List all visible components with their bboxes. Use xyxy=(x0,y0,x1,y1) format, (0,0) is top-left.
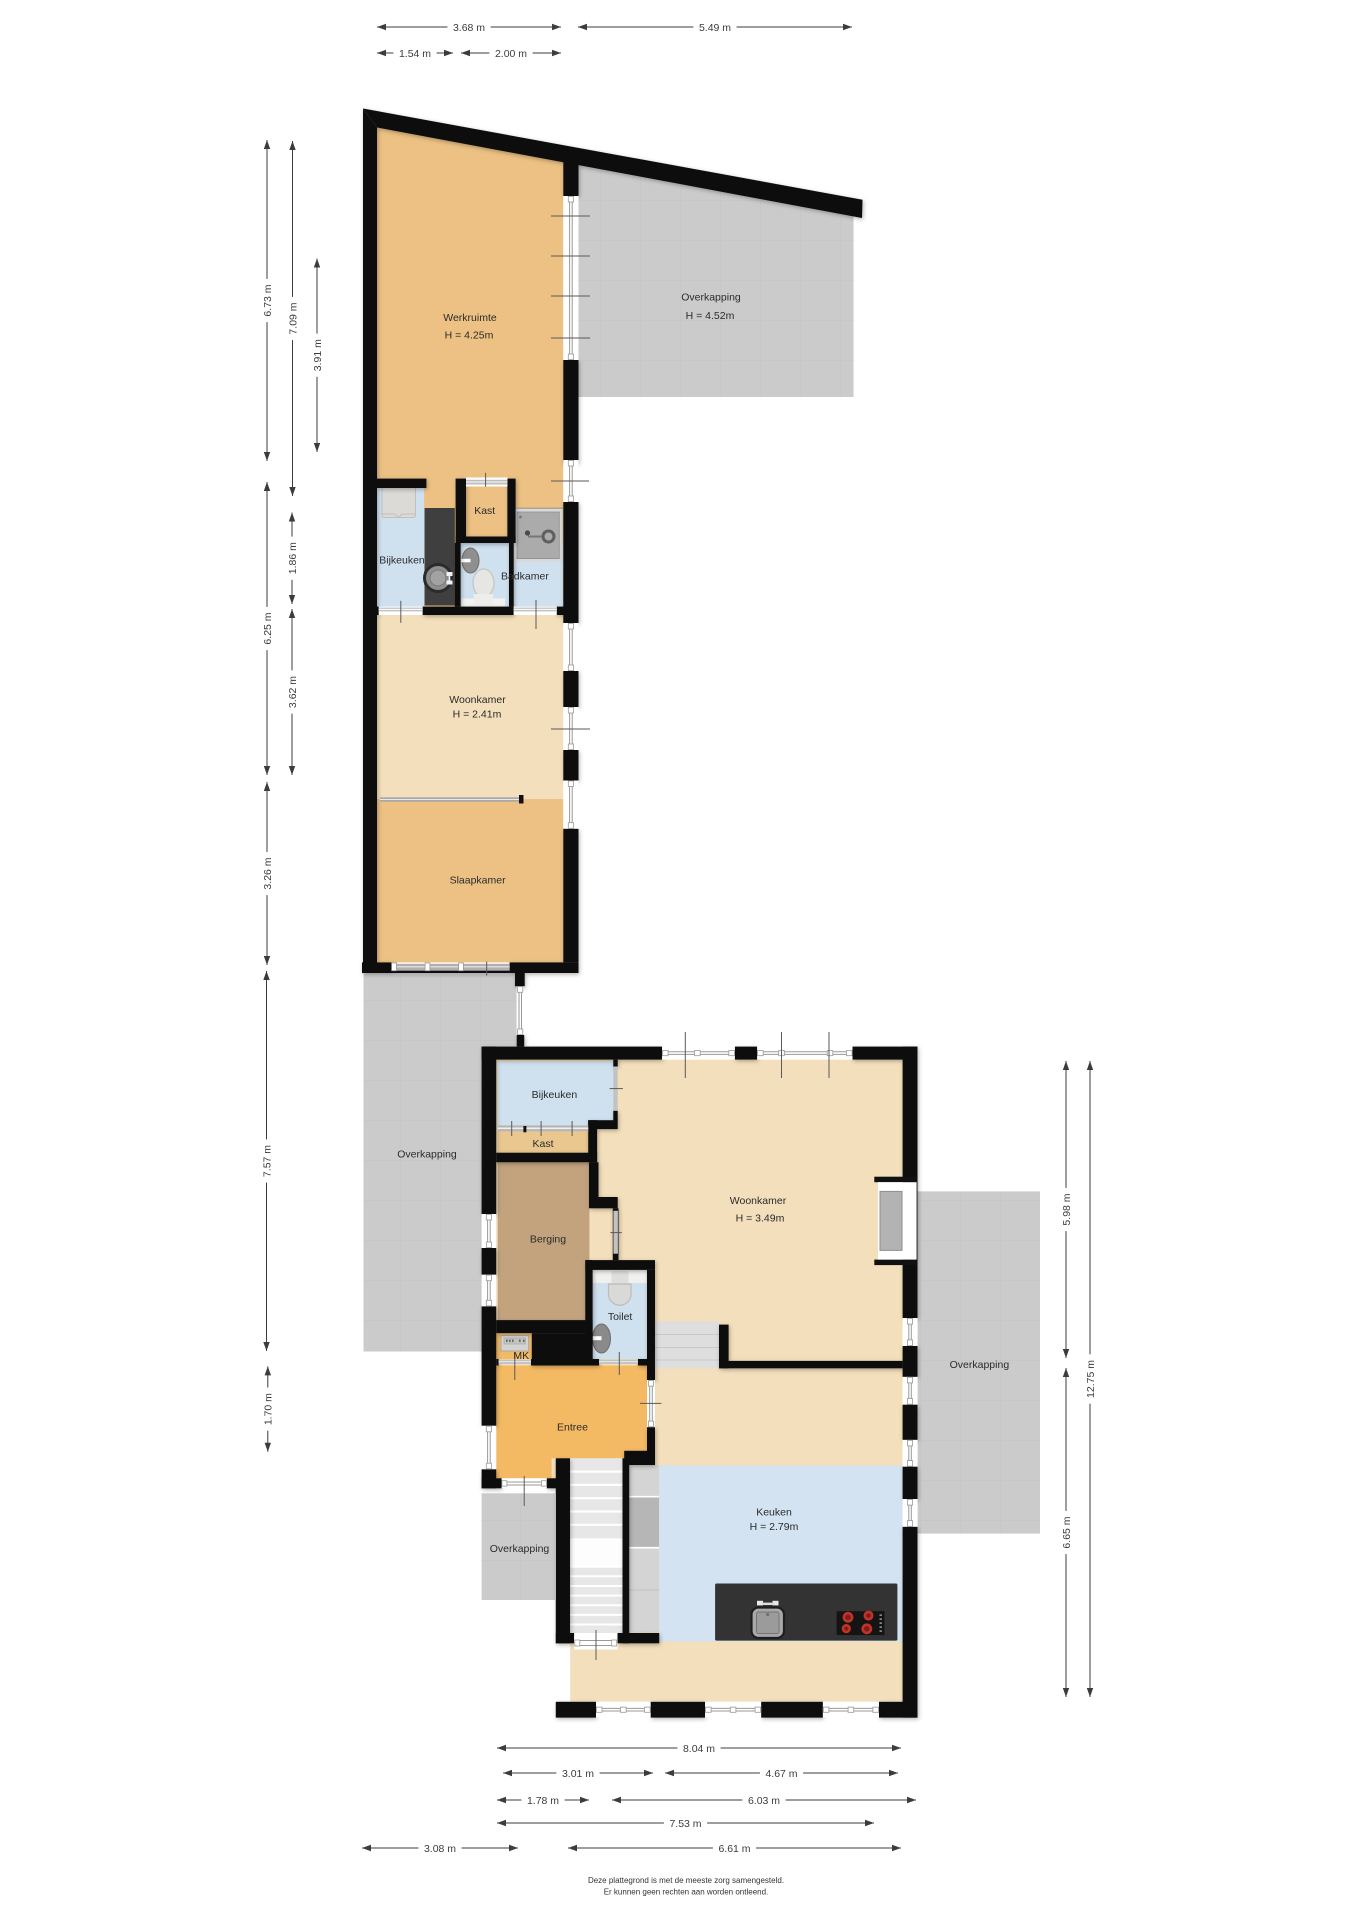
svg-text:Toilet: Toilet xyxy=(608,1311,633,1323)
svg-text:6.73 m: 6.73 m xyxy=(262,284,274,316)
svg-text:3.08 m: 3.08 m xyxy=(424,1843,456,1855)
svg-text:6.65 m: 6.65 m xyxy=(1061,1516,1073,1548)
svg-text:5.98 m: 5.98 m xyxy=(1061,1193,1073,1225)
svg-text:Entree: Entree xyxy=(557,1422,588,1434)
svg-text:1.70 m: 1.70 m xyxy=(263,1393,275,1425)
svg-text:Woonkamer: Woonkamer xyxy=(730,1195,787,1207)
svg-text:Overkapping: Overkapping xyxy=(397,1149,457,1161)
svg-text:Bijkeuken: Bijkeuken xyxy=(379,554,425,566)
svg-text:3.68 m: 3.68 m xyxy=(453,22,485,34)
svg-text:3.26 m: 3.26 m xyxy=(262,857,274,889)
svg-text:H = 2.41m: H = 2.41m xyxy=(453,709,502,721)
svg-text:H = 4.52m: H = 4.52m xyxy=(686,310,735,322)
svg-text:3.01 m: 3.01 m xyxy=(562,1768,594,1780)
svg-text:7.09 m: 7.09 m xyxy=(287,302,299,334)
svg-text:12.75 m: 12.75 m xyxy=(1085,1360,1097,1398)
svg-text:7.57 m: 7.57 m xyxy=(261,1145,273,1177)
svg-text:8.04 m: 8.04 m xyxy=(683,1743,715,1755)
svg-text:7.53 m: 7.53 m xyxy=(669,1818,701,1830)
svg-text:H = 2.79m: H = 2.79m xyxy=(750,1521,799,1533)
svg-text:H = 3.49m: H = 3.49m xyxy=(736,1213,785,1225)
svg-text:H = 4.25m: H = 4.25m xyxy=(445,330,494,342)
svg-text:Berging: Berging xyxy=(530,1233,566,1245)
svg-text:Woonkamer: Woonkamer xyxy=(449,694,506,706)
svg-text:MK: MK xyxy=(513,1350,529,1362)
svg-text:Overkapping: Overkapping xyxy=(681,292,741,304)
svg-text:1.78 m: 1.78 m xyxy=(527,1795,559,1807)
svg-text:Werkruimte: Werkruimte xyxy=(443,312,497,324)
svg-text:Badkamer: Badkamer xyxy=(501,570,549,582)
svg-text:2.00 m: 2.00 m xyxy=(495,48,527,60)
svg-text:Overkapping: Overkapping xyxy=(950,1359,1010,1371)
svg-text:Er kunnen geen rechten aan wor: Er kunnen geen rechten aan worden ontlee… xyxy=(604,1888,769,1897)
svg-text:6.61 m: 6.61 m xyxy=(718,1843,750,1855)
svg-text:Kast: Kast xyxy=(474,505,495,517)
svg-text:5.49 m: 5.49 m xyxy=(699,22,731,34)
svg-text:Bijkeuken: Bijkeuken xyxy=(532,1089,578,1101)
svg-text:Keuken: Keuken xyxy=(756,1507,792,1519)
svg-text:Kast: Kast xyxy=(532,1138,553,1150)
svg-text:Deze plattegrond is met de mee: Deze plattegrond is met de meeste zorg s… xyxy=(588,1876,784,1885)
svg-text:4.67 m: 4.67 m xyxy=(765,1768,797,1780)
svg-text:Overkapping: Overkapping xyxy=(490,1543,550,1555)
svg-text:1.54 m: 1.54 m xyxy=(399,48,431,60)
svg-text:1.86 m: 1.86 m xyxy=(287,542,299,574)
svg-text:6.25 m: 6.25 m xyxy=(262,612,274,644)
svg-text:Slaapkamer: Slaapkamer xyxy=(450,875,507,887)
svg-text:3.91 m: 3.91 m xyxy=(312,339,324,371)
svg-text:6.03 m: 6.03 m xyxy=(748,1795,780,1807)
svg-text:3.62 m: 3.62 m xyxy=(287,676,299,708)
